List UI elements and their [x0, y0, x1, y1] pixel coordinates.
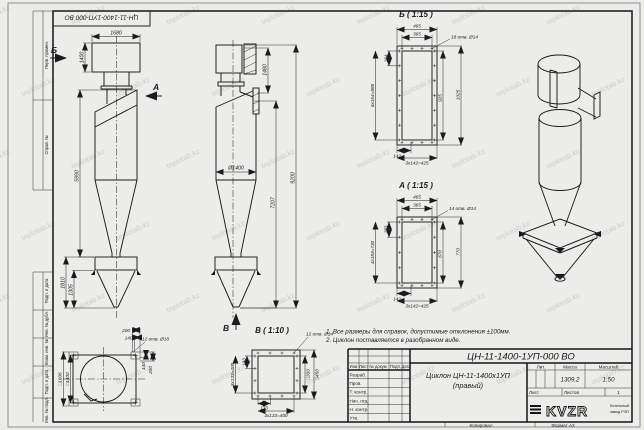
margin-columns: Перв. примен. Справ. № Подп. и дата Инв.…	[33, 11, 53, 423]
titleblock-header-izm: Изм	[350, 364, 358, 369]
side-arrow-v-label: В	[223, 323, 229, 333]
view-v-title: В ( 1:10 )	[255, 326, 289, 335]
titleblock-sheets-value: 1	[617, 390, 620, 395]
note-line-1: 1. Все размеры для справок, допустимые о…	[326, 329, 511, 336]
titleblock-sheet-label: Лист	[529, 390, 540, 395]
side-dim-9200: 9200	[291, 172, 297, 184]
titleblock-scale-label: Масштаб	[599, 364, 619, 369]
titleblock-lit-label: Лит.	[537, 364, 546, 369]
titleblock-sheets-label: Листов	[564, 390, 579, 395]
flange-dim-sq1400: □1400	[65, 372, 70, 386]
view-v-dim-sq450: □450	[315, 369, 320, 380]
side-view: 1480 7207 9200 Ø1400 В	[211, 40, 297, 333]
view-v-dim-sq350: □350	[306, 369, 311, 380]
flange-holes-label: 12 отв. Ø18	[142, 337, 169, 342]
isometric-view	[519, 55, 601, 281]
view-v-dim-133-left: 133	[242, 358, 247, 366]
title-block: ЦН-11-1400-1УП-000 ВО Циклон ЦН-11-1400х…	[348, 349, 632, 428]
front-dim-1680: 1680	[110, 31, 122, 37]
view-a-dim-365: 365	[413, 203, 421, 208]
titleblock-row-prov: Пров.	[350, 381, 362, 386]
notes: 1. Все размеры для справок, допустимые о…	[325, 329, 511, 345]
margin-label-inv-podl: Инв. № подл.	[44, 397, 49, 423]
view-b-dim-465: 465	[413, 24, 421, 29]
format-label: Формат А3	[551, 423, 575, 428]
view-a-dim-3x142: 3х142=425	[405, 304, 429, 309]
view-v-dim-133-bottom: 133	[260, 406, 268, 411]
view-b-dim-365: 365	[413, 32, 421, 37]
paper: teplotab.kzteplotab.kzteplotab.kzteplota…	[0, 0, 644, 430]
view-a-dim-670: 670	[438, 250, 443, 258]
titleblock-scale-value: 1:50	[602, 377, 615, 384]
side-dim-7207: 7207	[271, 196, 277, 209]
titleblock-mass-label: Масса	[563, 364, 577, 369]
drawing-sheet: { "watermark": "teplotab.kz", "colors": …	[0, 0, 644, 430]
side-dim-diameter: Ø1400	[227, 166, 244, 172]
titleblock-row-utv: Утв.	[350, 416, 359, 421]
front-dim-5990: 5990	[75, 170, 81, 182]
side-dim-1480: 1480	[263, 64, 269, 76]
view-v-dim-3x133-left: 3х133=400	[230, 362, 235, 386]
titleblock-header-doc: № докум.	[369, 364, 387, 369]
view-a-holes-label: 14 отв. Ø14	[449, 206, 476, 211]
front-arrow-a-label: А	[152, 82, 159, 92]
margin-label-sprav-no: Справ. №	[44, 135, 49, 155]
front-view: 1680 1400 5990 1810 1305 Б А	[50, 31, 162, 319]
view-a-dim-465: 465	[413, 195, 421, 200]
titleblock-name-line1: Циклон ЦН-11-1400х1УП	[426, 371, 511, 380]
front-dim-1305: 1305	[69, 284, 75, 296]
titleblock-row-nachotd: Нач. отд.	[350, 398, 369, 403]
view-b-dim-6x164: 6х164=985	[370, 83, 375, 107]
flange-dim-sq1606: □1606	[58, 372, 63, 386]
titleblock-row-nkontr: Н. контр.	[350, 407, 369, 412]
view-v-bolt-ticks	[254, 352, 299, 398]
view-b-dim-925: 925	[438, 94, 443, 102]
logo-bars-icon	[530, 406, 541, 413]
view-a-dim-183: 183	[384, 225, 389, 233]
top-inverted-designation: ЦН-11-1400-1УП-000 ВО	[65, 14, 139, 21]
copied-label: Копировал	[469, 423, 492, 428]
view-v-dim-3x133-bottom: 3х133=400	[264, 413, 288, 418]
flange-top-view: 200 140 12 отв. Ø18 140 200 □1606 □1400	[58, 328, 170, 411]
front-dim-1400: 1400	[80, 52, 86, 64]
flange-dim-200-right: 200	[148, 366, 153, 375]
titleblock-designation: ЦН-11-1400-1УП-000 ВО	[467, 352, 575, 363]
margin-label-vzam-inv: Взам. инв. №	[44, 339, 49, 365]
titleblock-row-tkontr: Т. контр.	[350, 390, 368, 395]
view-v: В ( 1:10 ) 12 отв. Ø14 133 3х133=400 133…	[230, 326, 333, 418]
view-b-dim-1025: 1025	[456, 89, 461, 100]
view-a-title: А ( 1:15 )	[398, 181, 433, 190]
view-b-holes-label: 18 отв. Ø14	[451, 35, 478, 40]
view-b-dim-3x142: 3х142=425	[405, 161, 429, 166]
margin-label-perv-primen: Перв. примен.	[44, 41, 49, 69]
company-name-line2: завод РЭП	[610, 410, 629, 414]
titleblock-header-data: Дата	[401, 364, 411, 369]
note-line-2: 2. Циклон поставляется в разобранном вид…	[325, 337, 460, 344]
view-b-title: Б ( 1:15 )	[399, 10, 433, 19]
view-b-dim-164: 164	[384, 54, 389, 62]
view-a-dim-4x183: 4х183=730	[370, 240, 375, 264]
company-logo: KVZR	[546, 403, 588, 419]
titleblock-row-razrab: Разраб.	[350, 372, 367, 377]
view-b-bolt-ticks	[398, 47, 436, 144]
flange-dim-200-top: 200	[121, 328, 130, 333]
flange-dim-140-top: 140	[125, 336, 133, 341]
front-dim-1810: 1810	[61, 277, 67, 289]
titleblock-header-list: Лист	[359, 364, 368, 369]
margin-label-podp-data-2: Подп. и дата	[44, 369, 49, 394]
view-b: Б ( 1:15 ) 18 отв. Ø14 465 365 164 6х164…	[370, 10, 478, 166]
view-a-bolt-ticks	[398, 218, 436, 287]
margin-label-inv-dubl: Инв. № дубл.	[44, 311, 49, 337]
front-arrow-b-label: Б	[51, 45, 57, 55]
view-a-dim-770: 770	[456, 248, 461, 256]
margin-label-podp-data-1: Подп. и дата	[44, 278, 49, 303]
titleblock-header-podp: Подп.	[390, 364, 401, 369]
titleblock-name-line2: (правый)	[453, 381, 483, 390]
flange-dim-140-right: 140	[141, 362, 146, 370]
view-a: А ( 1:15 ) 14 отв. Ø14 465 365 183 4х183…	[370, 181, 476, 309]
titleblock-mass-value: 1309,2	[561, 377, 580, 384]
company-name-line1: Котельный	[610, 404, 629, 408]
drawing-canvas: ЦН-11-1400-1УП-000 ВО Перв. примен. Спра…	[0, 0, 644, 430]
